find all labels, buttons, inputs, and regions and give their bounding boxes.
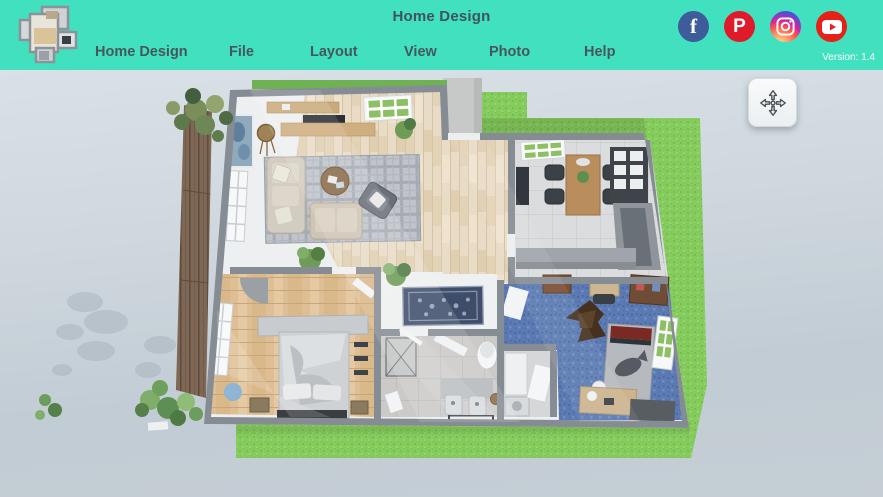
- facebook-glyph: f: [690, 14, 697, 39]
- menu-item-help[interactable]: Help: [584, 44, 615, 60]
- design-canvas[interactable]: [0, 70, 883, 497]
- ladder-shelf[interactable]: [354, 342, 368, 375]
- nightstand-left[interactable]: [250, 398, 269, 412]
- move-pan-icon: [759, 89, 787, 117]
- social-links: f P: [678, 11, 847, 42]
- version-label: Version: 1.4: [822, 52, 875, 63]
- roof-window-dining: [520, 139, 565, 160]
- menu-item-layout[interactable]: Layout: [310, 44, 358, 60]
- logo-room: [34, 28, 56, 44]
- facebook-icon[interactable]: f: [678, 11, 709, 42]
- menu-item-file[interactable]: File: [229, 44, 254, 60]
- roof-window-living: [363, 95, 412, 121]
- design-viewport[interactable]: [0, 70, 883, 497]
- instagram-camera-glyph: [776, 17, 795, 36]
- app-header: Home Design Home Design File Layout View…: [0, 0, 883, 70]
- deck: [176, 105, 212, 398]
- floor-lamp[interactable]: [224, 383, 242, 401]
- dining-tv-panel[interactable]: [516, 167, 529, 205]
- youtube-play-glyph: [822, 19, 842, 35]
- move-tool-button[interactable]: [748, 78, 797, 127]
- laundry-cabinet[interactable]: [505, 353, 527, 395]
- logo-furniture-dark: [62, 36, 71, 44]
- entry-door[interactable]: [448, 133, 480, 140]
- menu-item-photo[interactable]: Photo: [489, 44, 530, 60]
- dining-table[interactable]: [566, 155, 600, 215]
- foliage-shadows: [52, 292, 176, 378]
- nightstand-right[interactable]: [351, 401, 368, 414]
- instagram-icon[interactable]: [770, 11, 801, 42]
- pinterest-glyph: P: [733, 16, 746, 38]
- youtube-icon[interactable]: [816, 11, 847, 42]
- entrance-path-edge: [474, 78, 482, 140]
- menu-bar: Home Design File Layout View Photo Help: [0, 44, 883, 64]
- menu-item-view[interactable]: View: [404, 44, 437, 60]
- pinterest-icon[interactable]: P: [724, 11, 755, 42]
- menu-item-home-design[interactable]: Home Design: [95, 44, 188, 60]
